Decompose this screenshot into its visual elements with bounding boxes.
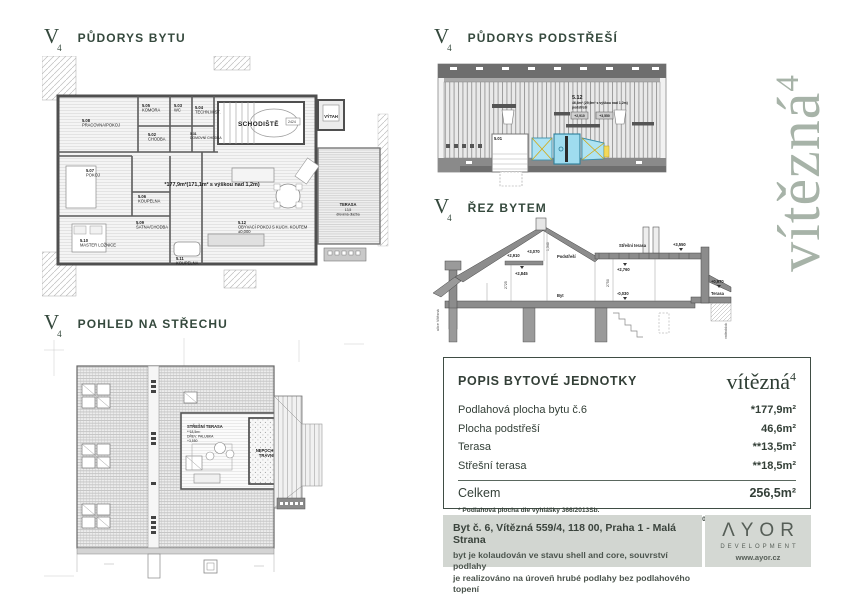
section-title-roof: POHLED NA STŘECHU xyxy=(78,317,228,331)
attic-stair-number: 5.01 xyxy=(494,136,503,141)
v4-logo: V4 xyxy=(44,26,64,50)
v4-logo: V4 xyxy=(44,312,64,336)
brochure-page: V4 PŮDORYS BYTU V4 PŮDORYS PODSTŘEŠÍ V4 … xyxy=(0,0,842,595)
roof-terrace-material: DŘEV. PALUBKA xyxy=(187,433,214,438)
attic-floor-plan: 5.12 46,6m² (29,9m² s výškou nad 1,2m) p… xyxy=(436,58,668,188)
svg-text:dřevěná dlažba: dřevěná dlažba xyxy=(336,213,359,217)
street-label: ulice Vítězná xyxy=(436,308,440,331)
ayor-development-label: DEVELOPMENT xyxy=(717,544,798,550)
elev-label: -0,030 xyxy=(617,291,629,296)
spec-row: Plocha podstřeší 46,6m² xyxy=(458,423,796,435)
attic-elev-1: +2,910 xyxy=(574,114,585,118)
stair-dim: 2424 xyxy=(288,120,296,124)
unit-address: Byt č. 6, Vítězná 559/4, 118 00, Praha 1… xyxy=(453,522,692,546)
area-annotation: *177,9m²(171,1m² s výškou nad 1,2m) xyxy=(164,182,259,188)
section-title-floor-plan: PŮDORYS BYTU xyxy=(78,31,186,45)
elevator-label: VÝTAH xyxy=(324,114,338,119)
elev-label: +2,845 xyxy=(515,271,528,276)
courtyard-label: vnitroblok xyxy=(724,323,728,339)
roof-terrace-elev: +3,550 xyxy=(187,439,198,443)
elev-label: +2,910 xyxy=(507,253,520,258)
elev-label: +3,550 xyxy=(673,242,686,247)
vertical-brand-wordmark: vítězná4 xyxy=(766,10,832,336)
footer-info: Byt č. 6, Vítězná 559/4, 118 00, Praha 1… xyxy=(443,515,702,567)
spec-row: Podlahová plocha bytu č.6 *177,9m² xyxy=(458,404,796,416)
ayor-logo: ΛYOR xyxy=(716,520,800,542)
section-title-attic: PŮDORYS PODSTŘEŠÍ xyxy=(468,31,618,45)
table-divider xyxy=(458,480,796,481)
space-label: Podstřeší xyxy=(557,254,577,259)
elev-label: +2,760 xyxy=(617,267,630,272)
space-label: Střešní terasa xyxy=(619,243,647,248)
spec-row: Terasa **13,5m² xyxy=(458,441,796,453)
elev-label: +3,070 xyxy=(527,249,540,254)
header-attic-plan: V4 PŮDORYS PODSTŘEŠÍ xyxy=(434,26,618,50)
space-label: Terasa xyxy=(711,291,725,296)
brand-wordmark: vítězná4 xyxy=(726,369,796,395)
section-drawing: +2,910 +3,070 1,340 Podstřeší Střešní te… xyxy=(427,213,738,351)
svg-text:13,5: 13,5 xyxy=(345,208,352,212)
space-label: Byt xyxy=(557,293,564,298)
roof-plan: STŘEŠNÍ TERASA **18,5m² DŘEV. PALUBKA +3… xyxy=(44,336,370,595)
header-roof-view: V4 POHLED NA STŘECHU xyxy=(44,312,228,336)
v4-logo: V4 xyxy=(434,26,454,50)
header-floor-plan: V4 PŮDORYS BYTU xyxy=(44,26,186,50)
spec-rows: Podlahová plocha bytu č.6 *177,9m² Ploch… xyxy=(458,404,796,472)
developer-logo-block: ΛYOR DEVELOPMENT www.ayor.cz xyxy=(705,515,811,567)
terrace-label: TERASA xyxy=(340,202,357,207)
roof-terrace-title: STŘEŠNÍ TERASA xyxy=(187,424,223,429)
dim-label: 2750 xyxy=(606,279,610,287)
ayor-website: www.ayor.cz xyxy=(736,553,781,562)
panel-title: POPIS BYTOVÉ JEDNOTKY xyxy=(458,369,637,388)
footer: Byt č. 6, Vítězná 559/4, 118 00, Praha 1… xyxy=(443,515,811,567)
apartment-floor-plan: 5.08PRACOVNA/POKOJ 5.05KOMORA 5.03WC 5.0… xyxy=(42,56,390,298)
attic-elev-2: +3,550 xyxy=(599,114,610,118)
dim-label: 1,340 xyxy=(546,242,550,251)
dim-label: 2725 xyxy=(504,281,508,289)
elev-label: +0,970 xyxy=(711,279,724,284)
attic-area: 46,6m² (29,9m² s výškou nad 1,2m) xyxy=(572,101,628,105)
roof-terrace-area: **18,5m² xyxy=(187,430,201,434)
total-row: Celkem 256,5m² xyxy=(458,486,796,500)
unit-spec-panel: POPIS BYTOVÉ JEDNOTKY vítězná4 Podlahová… xyxy=(443,357,811,509)
spec-row: Střešní terasa **18,5m² xyxy=(458,460,796,472)
attic-room-name: podstřeší xyxy=(572,105,588,109)
staircase-label: SCHODIŠTĚ xyxy=(238,119,279,128)
